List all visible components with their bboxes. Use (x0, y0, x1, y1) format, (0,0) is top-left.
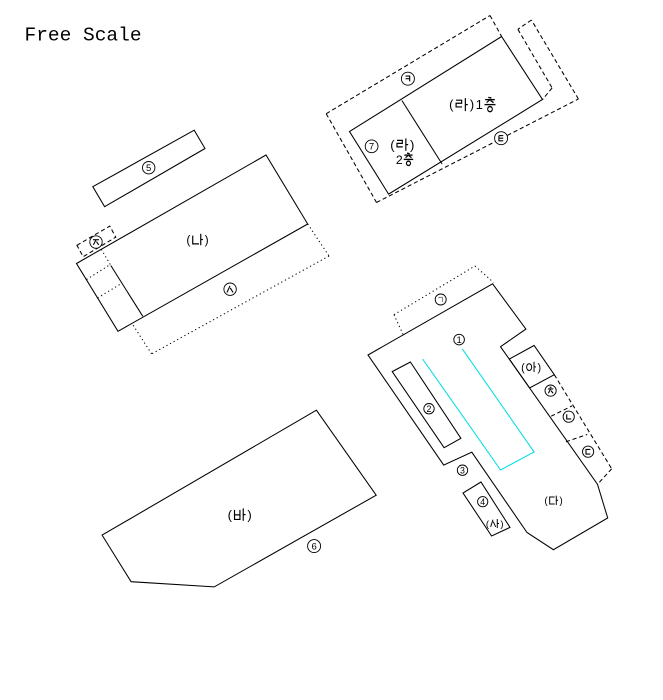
svg-text:5: 5 (146, 163, 151, 174)
svg-text:): ) (205, 233, 209, 247)
svg-text:6: 6 (311, 542, 316, 553)
svg-text:(: ( (521, 362, 525, 374)
svg-text:1: 1 (476, 97, 483, 112)
svg-text:Free Scale: Free Scale (25, 25, 142, 47)
svg-text:1: 1 (457, 335, 462, 345)
svg-text:(: ( (228, 507, 233, 522)
svg-text:7: 7 (369, 142, 374, 153)
svg-text:): ) (500, 519, 503, 530)
svg-text:(: ( (186, 233, 190, 247)
svg-text:2: 2 (396, 153, 403, 167)
svg-text:(: ( (390, 137, 395, 152)
svg-text:): ) (410, 137, 414, 152)
svg-text:4: 4 (480, 497, 485, 507)
svg-text:3: 3 (460, 465, 465, 475)
svg-text:): ) (247, 507, 251, 522)
svg-text:): ) (559, 496, 562, 507)
svg-text:): ) (537, 362, 541, 374)
svg-text:): ) (470, 97, 474, 112)
svg-text:2: 2 (427, 404, 432, 414)
svg-text:(: ( (449, 97, 454, 112)
